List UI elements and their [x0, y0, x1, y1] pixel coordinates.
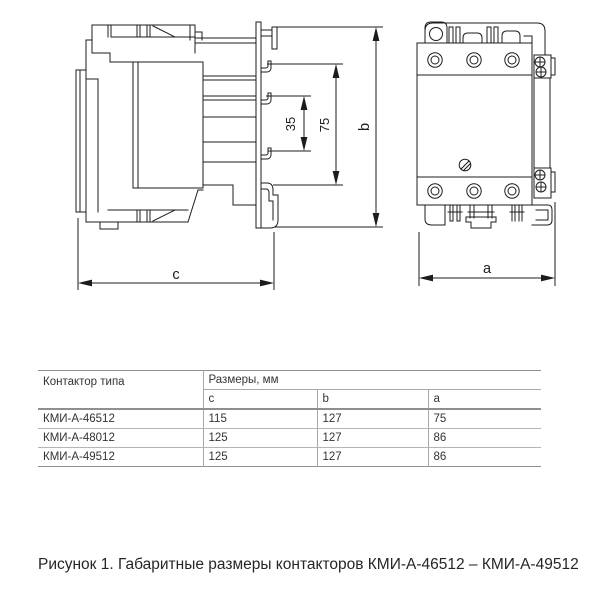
- dim-c-cell: 115: [203, 409, 317, 429]
- model-cell: КМИ-А-49512: [38, 448, 203, 467]
- dimensions-table: Контактор типа Размеры, мм c b a КМИ-А-4…: [38, 370, 541, 467]
- aux-screws-bottom: [535, 170, 546, 192]
- col-header-c: c: [203, 390, 317, 410]
- table-row: КМИ-А-46512 115 127 75: [38, 409, 541, 429]
- col-header-b: b: [317, 390, 428, 410]
- table-header-row-1: Контактор типа Размеры, мм: [38, 371, 541, 390]
- col-header-a: a: [428, 390, 541, 410]
- dim-label-a: a: [483, 261, 492, 277]
- dim-a-cell: 86: [428, 429, 541, 448]
- datasheet-page: 35 75 b c a Контактор типа Размеры, мм c…: [0, 0, 600, 600]
- dim-label-c: c: [172, 267, 179, 283]
- dim-b-cell: 127: [317, 429, 428, 448]
- dim-c-cell: 125: [203, 448, 317, 467]
- table-row: КМИ-А-49512 125 127 86: [38, 448, 541, 467]
- col-header-contactor-type: Контактор типа: [38, 371, 203, 410]
- figure-caption: Рисунок 1. Габаритные размеры контакторо…: [38, 556, 579, 574]
- dim-label-35: 35: [283, 117, 298, 131]
- contactor-dimensional-drawing: 35 75 b c a: [0, 0, 600, 345]
- dim-b-cell: 127: [317, 409, 428, 429]
- col-header-sizes-group: Размеры, мм: [203, 371, 541, 390]
- dim-a-cell: 86: [428, 448, 541, 467]
- dim-label-75: 75: [317, 118, 332, 132]
- dim-label-b: b: [357, 123, 373, 131]
- model-cell: КМИ-А-46512: [38, 409, 203, 429]
- dim-b-cell: 127: [317, 448, 428, 467]
- model-cell: КМИ-А-48012: [38, 429, 203, 448]
- dim-c-cell: 125: [203, 429, 317, 448]
- front-view-drawing: [417, 22, 555, 228]
- aux-screws-top: [535, 57, 546, 77]
- table-row: КМИ-А-48012 125 127 86: [38, 429, 541, 448]
- dim-a-cell: 75: [428, 409, 541, 429]
- side-view-drawing: [76, 22, 278, 229]
